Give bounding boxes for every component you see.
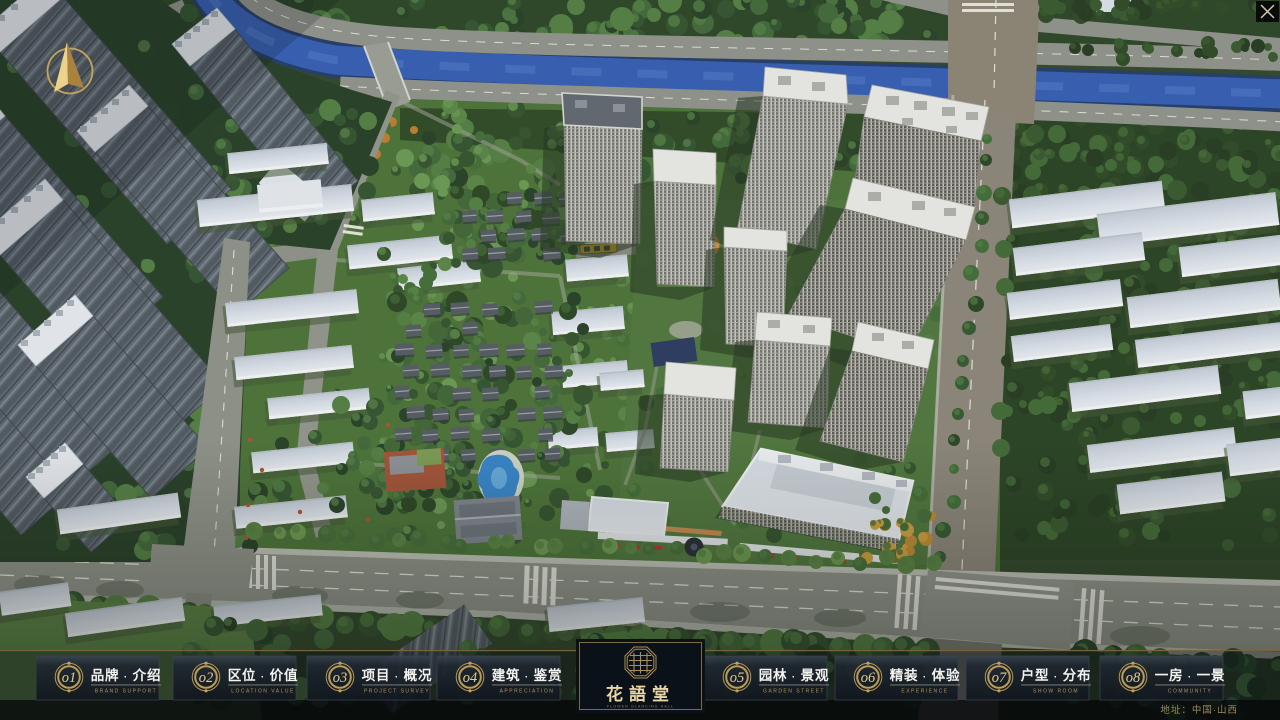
svg-text:o5: o5 [730,670,745,686]
svg-text:o1: o1 [62,670,77,686]
svg-text:GARDEN STREET: GARDEN STREET [763,688,825,694]
svg-text:花語堂: 花語堂 [606,684,675,704]
svg-text:BRAND SUPPORT: BRAND SUPPORT [95,688,157,694]
svg-text:o4: o4 [463,670,478,686]
svg-text:o2: o2 [199,670,214,686]
svg-text:LOCATION VALUE: LOCATION VALUE [231,688,295,694]
svg-text:o3: o3 [333,670,348,686]
svg-text:SHOW ROOM: SHOW ROOM [1033,688,1079,694]
svg-text:EXPERIENCE: EXPERIENCE [901,688,948,694]
svg-text:o7: o7 [992,670,1007,686]
svg-text:COMMUNITY: COMMUNITY [1168,688,1212,694]
svg-text:APPRECIATION: APPRECIATION [500,688,555,694]
svg-text:地址：中国·山西: 地址：中国·山西 [1160,704,1238,716]
svg-text:FLOWER GLANCING HALL: FLOWER GLANCING HALL [607,705,674,709]
svg-text:o8: o8 [1126,670,1141,686]
svg-text:PROJECT SURVEY: PROJECT SURVEY [364,688,430,694]
svg-text:o6: o6 [861,670,876,686]
